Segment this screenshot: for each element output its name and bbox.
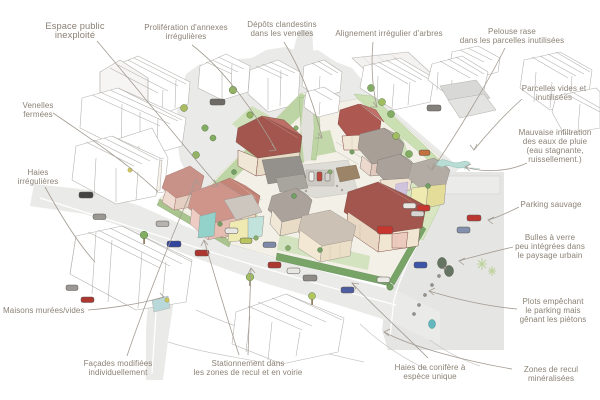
svg-text:le parking mais: le parking mais [525, 306, 580, 315]
svg-text:fermées: fermées [23, 110, 53, 119]
svg-text:Façades modifiées: Façades modifiées [84, 359, 153, 368]
svg-text:irrégulières: irrégulières [166, 32, 207, 41]
svg-text:dans les parcelles inutilisées: dans les parcelles inutilisées [460, 36, 564, 45]
svg-text:irrégulières: irrégulières [18, 177, 59, 186]
svg-text:Bulles à verre: Bulles à verre [525, 233, 576, 242]
svg-text:Stationnement dans: Stationnement dans [212, 359, 285, 368]
svg-text:les zones de recul et en voiri: les zones de recul et en voirie [194, 368, 303, 377]
svg-text:Zones de recul: Zones de recul [524, 365, 578, 374]
svg-text:espèce unique: espèce unique [403, 372, 457, 381]
svg-text:Haies: Haies [28, 168, 49, 177]
svg-text:inutilisées: inutilisées [536, 93, 572, 102]
svg-text:Alignement irrégulier d'arbres: Alignement irrégulier d'arbres [335, 29, 442, 38]
svg-text:Dépôts clandestins: Dépôts clandestins [247, 20, 316, 29]
svg-text:ruissellement.): ruissellement.) [528, 155, 582, 164]
svg-text:Parking sauvage: Parking sauvage [520, 200, 582, 209]
svg-text:(eau stagnante,: (eau stagnante, [526, 146, 583, 155]
svg-text:Mauvaise infiltration: Mauvaise infiltration [519, 128, 592, 137]
svg-text:Venelles: Venelles [22, 101, 53, 110]
svg-text:Pelouse rase: Pelouse rase [488, 27, 536, 36]
svg-text:Plots empêchant: Plots empêchant [522, 297, 584, 306]
svg-text:Maisons murées/vides: Maisons murées/vides [3, 306, 85, 315]
svg-text:gênant les piétons: gênant les piétons [520, 315, 587, 324]
svg-text:Haies de conifère à: Haies de conifère à [395, 363, 466, 372]
svg-text:minéralisées: minéralisées [528, 374, 574, 383]
svg-text:le paysage urbain: le paysage urbain [518, 251, 583, 260]
svg-text:inexploité: inexploité [55, 30, 95, 40]
svg-text:individuellement: individuellement [89, 368, 149, 377]
svg-text:Prolifération d'annexes: Prolifération d'annexes [144, 23, 227, 32]
svg-text:peu intégrées dans: peu intégrées dans [515, 242, 585, 251]
svg-text:Parcelles vides et: Parcelles vides et [522, 84, 587, 93]
svg-text:dans les venelles: dans les venelles [250, 29, 313, 38]
svg-text:des eaux de pluie: des eaux de pluie [523, 137, 588, 146]
